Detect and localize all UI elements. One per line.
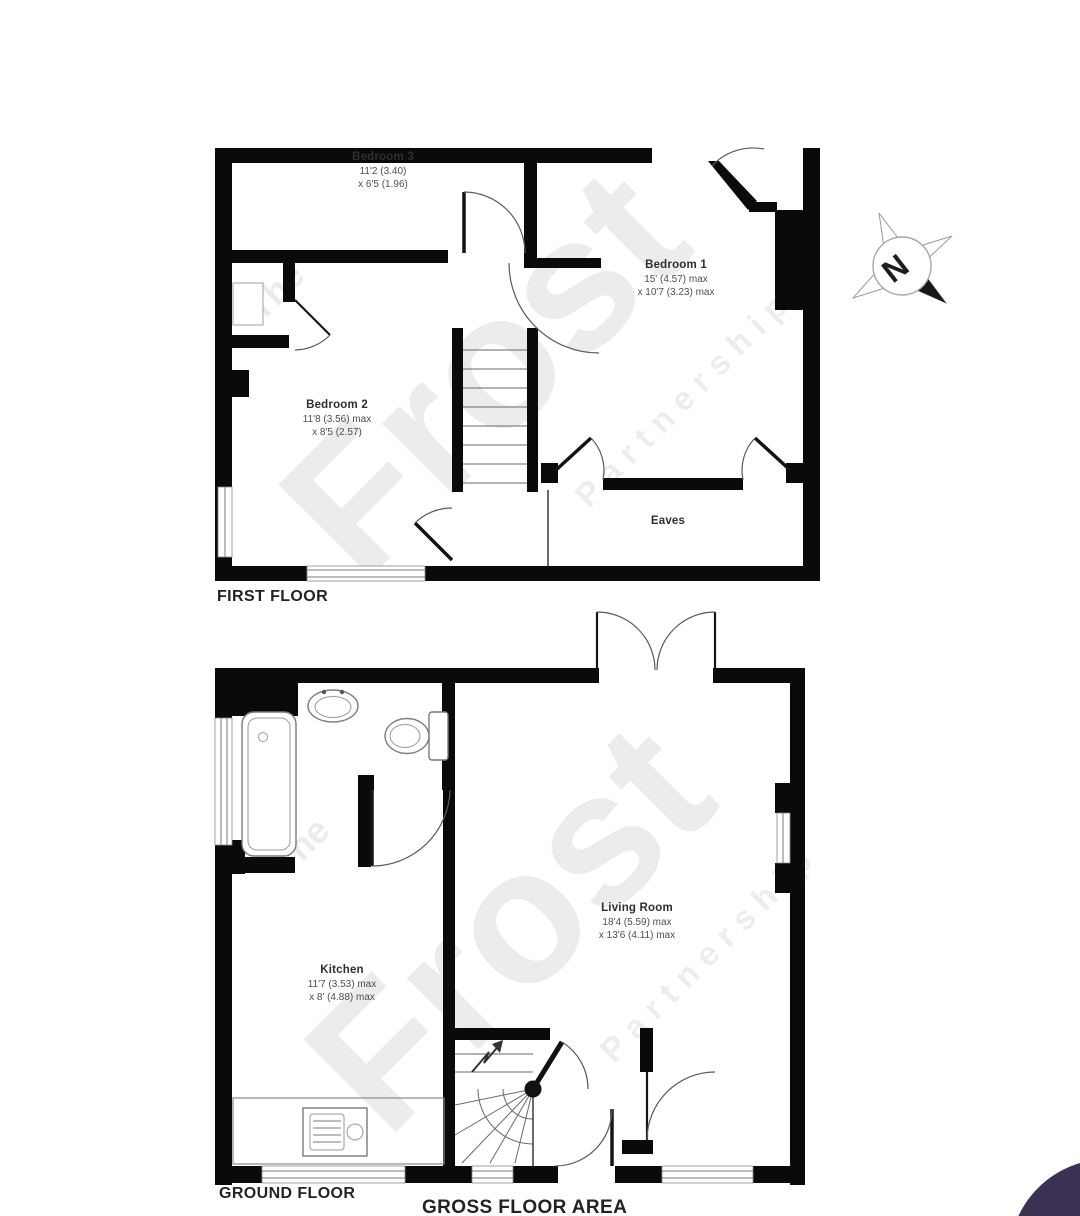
- room-dim-living-room-a: 18'4 (5.59) max: [602, 917, 671, 928]
- floorplan-image: The Frost Partnership The Frost Partners…: [0, 0, 1080, 1216]
- room-dim-kitchen-a: 11'7 (3.53) max: [308, 979, 376, 990]
- cupboard-recess: [233, 283, 263, 325]
- room-dim-bedroom-3-b: x 6'5 (1.96): [358, 179, 408, 190]
- room-dim-living-room-b: x 13'6 (4.11) max: [599, 930, 675, 941]
- sink-tap: [322, 690, 326, 694]
- toilet-cistern: [429, 712, 448, 760]
- room-dim-kitchen-b: x 8' (4.88) max: [309, 992, 375, 1003]
- bathtub: [242, 712, 296, 856]
- room-dim-bedroom-3-a: 11'2 (3.40): [360, 166, 407, 177]
- box-room-door-arc: [295, 335, 330, 350]
- room-dim-bedroom-2-a: 11'8 (3.56) max: [303, 414, 371, 425]
- eaves-right-door-arc: [742, 438, 755, 480]
- room-label-bedroom-3: Bedroom 3: [352, 151, 414, 163]
- compass-north-arrow: N: [853, 213, 952, 303]
- bathroom-fixtures: [242, 690, 448, 856]
- toilet: [385, 719, 429, 754]
- sink-tap: [340, 690, 344, 694]
- ground-floor-title: GROUND FLOOR: [219, 1185, 355, 1202]
- room-label-eaves: Eaves: [651, 515, 685, 527]
- box-room-door-leaf: [295, 300, 330, 335]
- floorplan-page: The Frost Partnership The Frost Partners…: [0, 0, 1080, 1216]
- room-label-bedroom-2: Bedroom 2: [306, 399, 368, 411]
- room-dim-bedroom-1-b: x 10'7 (3.23) max: [638, 287, 715, 298]
- room-dim-bedroom-2-b: x 8'5 (2.57): [312, 427, 362, 438]
- stair-door-leaf: [533, 1042, 562, 1089]
- watermark-frost: Frost: [266, 684, 752, 1170]
- first-floor-title: FIRST FLOOR: [217, 588, 328, 605]
- room-label-bedroom-1: Bedroom 1: [645, 259, 707, 271]
- watermark-frost: Frost: [241, 129, 727, 615]
- gross-floor-area-heading: GROSS FLOOR AREA: [422, 1197, 627, 1216]
- corner-accent-shape: [1009, 1159, 1080, 1216]
- stair-door-arc: [562, 1042, 588, 1089]
- french-doors: [597, 612, 715, 670]
- eaves-right-door-leaf: [755, 438, 790, 470]
- corner-diagonal-wall: [708, 161, 757, 210]
- kitchen-sink-unit: [303, 1108, 367, 1156]
- room-dim-bedroom-1-a: 15' (4.57) max: [644, 274, 708, 285]
- room-label-living-room: Living Room: [601, 902, 673, 914]
- room-label-kitchen: Kitchen: [320, 964, 364, 976]
- front-door-arc: [555, 1109, 612, 1166]
- living-room-door-arc: [647, 1072, 715, 1140]
